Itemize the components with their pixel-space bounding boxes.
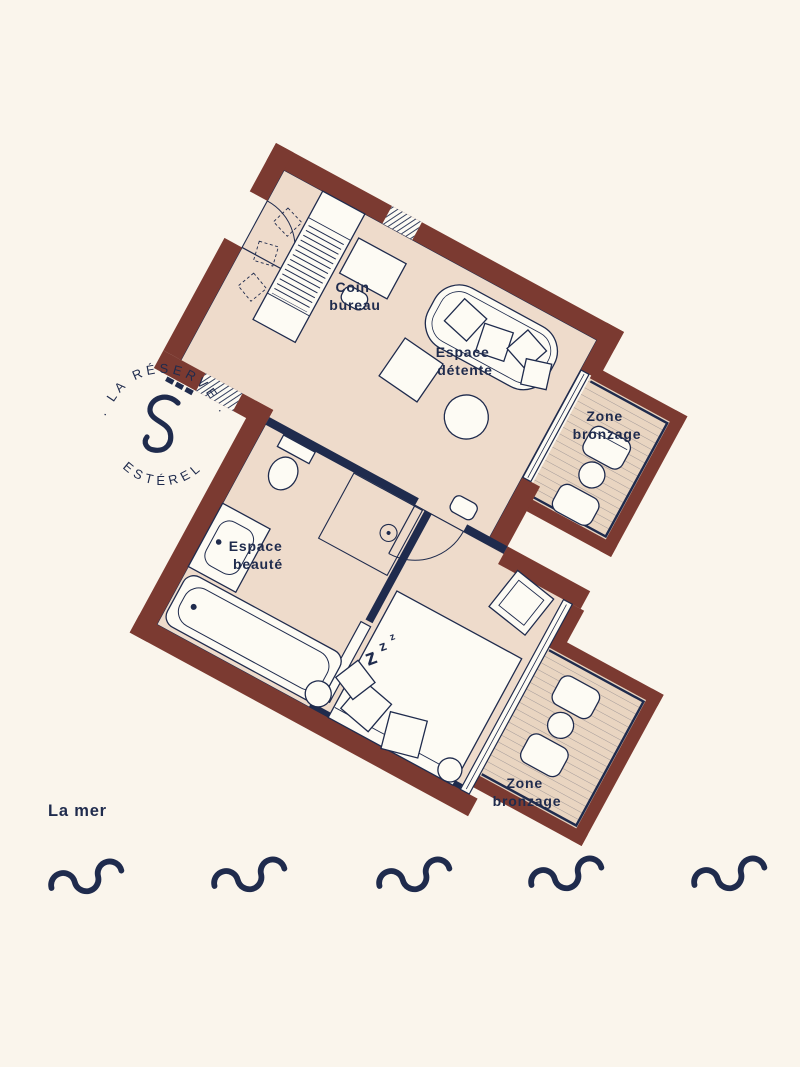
logo-bottom-text: ESTÉREL xyxy=(120,459,206,488)
wave-icon xyxy=(212,857,288,898)
plan-group xyxy=(37,143,800,871)
wave-icon xyxy=(49,859,125,900)
logo-s-monogram-icon xyxy=(145,397,178,450)
sea-label: La mer xyxy=(48,802,107,820)
wave-icon xyxy=(529,856,605,897)
logo: · LA RÉSERVE · ESTÉREL xyxy=(96,361,229,488)
wave-icon xyxy=(377,857,453,898)
floor-plan: Coin bureau Espace détente Zone bronzage… xyxy=(0,0,800,1067)
sea-waves xyxy=(49,856,768,900)
wave-icon xyxy=(692,856,768,897)
sofa-pillow xyxy=(521,359,552,390)
